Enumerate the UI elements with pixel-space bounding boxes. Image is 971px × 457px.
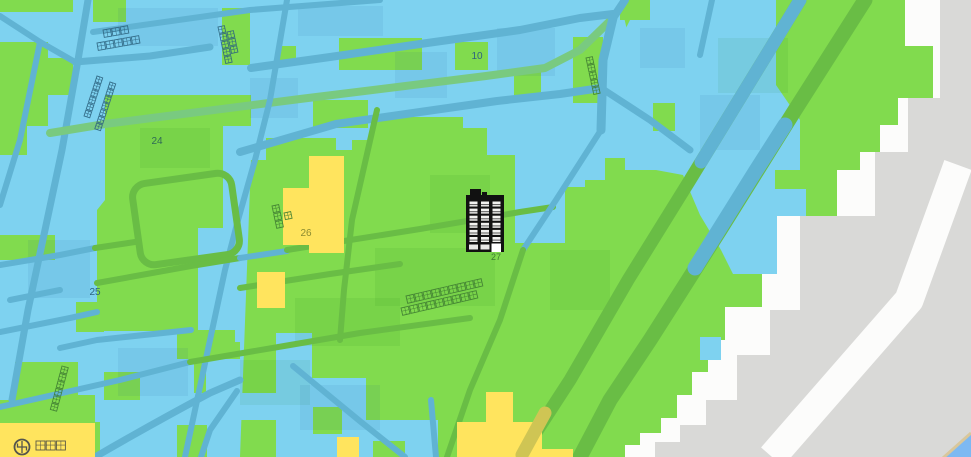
- svg-text:25: 25: [89, 287, 101, 298]
- svg-text:24: 24: [151, 136, 163, 147]
- svg-text:10: 10: [471, 51, 483, 62]
- svg-text:27: 27: [491, 252, 501, 262]
- svg-text:26: 26: [300, 228, 312, 239]
